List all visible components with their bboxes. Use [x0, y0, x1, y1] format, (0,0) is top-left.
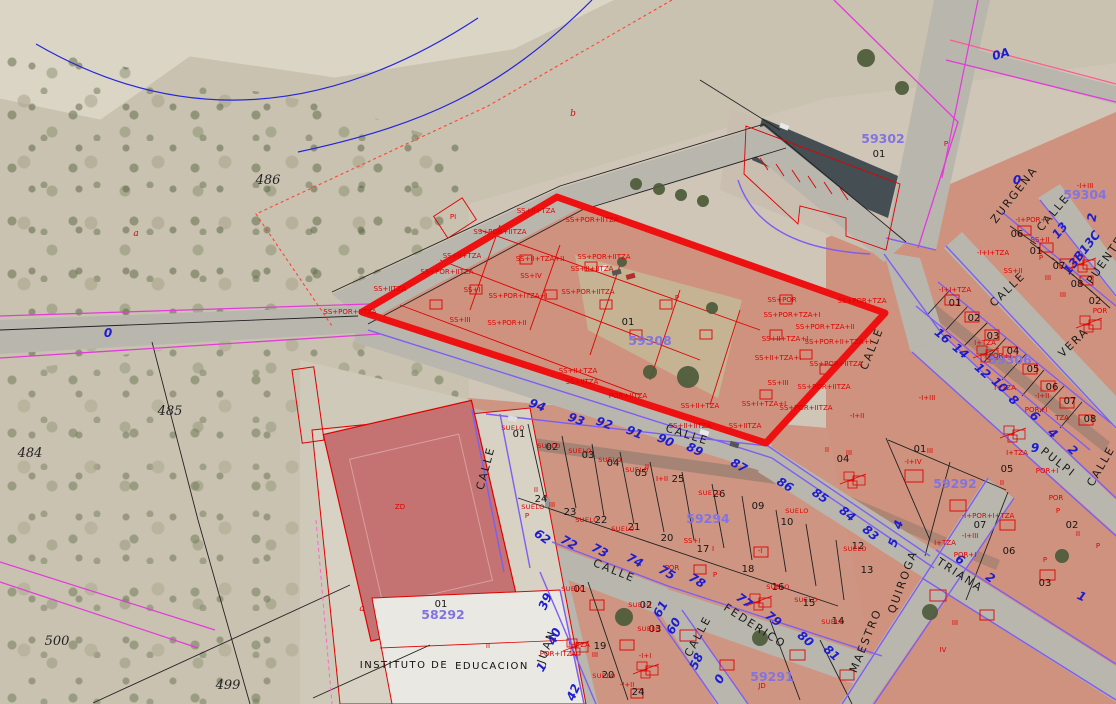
construction-label: SS+POR+IITZA: [577, 253, 630, 261]
suelo-label: SUELO: [766, 583, 790, 591]
construction-label: SS+II+TZA: [681, 402, 720, 410]
construction-label: -I+IV: [904, 458, 922, 466]
construction-label: I+TZA: [1006, 449, 1028, 457]
construction-label: II: [1000, 479, 1004, 487]
construction-label: SS+III: [450, 316, 471, 324]
construction-label: -I+POR+I: [1016, 216, 1049, 224]
suelo-label: SUELO: [698, 489, 722, 497]
contour-lines: [36, 0, 592, 152]
parcel-numbers-label: 17: [697, 544, 710, 555]
construction-label: SS+POR+IITZA: [420, 268, 473, 276]
construction-label: -I+I+TZA: [977, 249, 1009, 257]
construction-label: SS+POR+IITZA: [473, 228, 526, 236]
suelo-label: SUELO: [625, 466, 649, 474]
parcel-codes-label: 59292: [933, 476, 977, 491]
parcel-numbers-label: 01: [914, 444, 927, 455]
construction-label: P: [1096, 542, 1100, 550]
cadastral-map-viewport[interactable]: 5930259304593065930859294592925829259291…: [0, 0, 1116, 704]
parcel-numbers-label: 01: [949, 298, 962, 309]
terrain-label: 484: [17, 446, 43, 461]
suelo-label: SUELO: [821, 618, 845, 626]
street-numbers-label: 9: [1031, 441, 1039, 455]
construction-label: SS+III: [768, 379, 789, 387]
parcel-numbers-label: 06: [1011, 229, 1024, 240]
parcel-numbers-label: 02: [1089, 296, 1102, 307]
construction-label: POR+ITZA: [540, 650, 577, 658]
construction-label: I+II: [656, 475, 668, 483]
suelo-label: SUELO: [575, 516, 599, 524]
suelo-label: SUELO: [521, 503, 545, 511]
construction-label: IV: [940, 646, 947, 654]
parcel-numbers-label: 13: [861, 565, 874, 576]
construction-label: JD: [757, 682, 765, 690]
parcel-numbers-label: 10: [781, 517, 794, 528]
construction-label: I+TZA: [934, 539, 956, 547]
construction-label: II: [825, 446, 829, 454]
construction-label: SS+II+IITZA: [669, 422, 712, 430]
construction-label: II: [534, 486, 538, 494]
parcel-numbers-label: 02: [968, 313, 981, 324]
construction-label: SS+II+TZA: [443, 252, 482, 260]
construction-label: SS+II: [1004, 267, 1023, 275]
parcel-numbers-label: 01: [622, 317, 635, 328]
construction-label: SS+POR: [767, 296, 796, 304]
construction-label: SS+II+TZA+I: [755, 354, 802, 362]
construction-label: SS+POR+IITZA: [809, 360, 862, 368]
construction-label: II: [1076, 530, 1080, 538]
construction-label: POR+I: [1025, 406, 1048, 414]
suelo-label: SUELO: [794, 596, 818, 604]
parcel-numbers-label: 25: [672, 474, 685, 485]
construction-label: SS+POR+TZA+I: [763, 311, 820, 319]
construction-label: SS+IITZA: [729, 422, 762, 430]
construction-label: SS+POR+IITZA: [779, 404, 832, 412]
construction-label: II: [486, 642, 490, 650]
misc-black-label: EDUCACION: [455, 661, 529, 672]
suelo-label: SUELO: [501, 424, 525, 432]
construction-label: SS+I: [464, 286, 481, 294]
construction-label: SS+POR+II+TZA+I: [805, 338, 872, 346]
construction-label: POR: [1049, 494, 1064, 502]
parcel-numbers-label: 08: [1071, 279, 1084, 290]
construction-label: P: [1056, 507, 1060, 515]
terrain-label: 499: [215, 678, 241, 693]
construction-label: P: [713, 571, 717, 579]
construction-label: ZD: [395, 503, 405, 511]
construction-label: SS+IV: [520, 272, 542, 280]
suelo-label: SUELO: [598, 456, 622, 464]
construction-label: SS+IITZA: [374, 285, 407, 293]
suelo-label: SUELO: [592, 672, 616, 680]
terrain-label: 500: [45, 634, 70, 649]
construction-label: -I+I+TZA: [939, 286, 971, 294]
construction-label: SS+II+TZA+I: [762, 335, 809, 343]
construction-label: SS+I: [684, 537, 701, 545]
construction-label: POR+IITZA: [609, 392, 648, 400]
construction-label: POR: [665, 564, 680, 572]
construction-label: POR+I: [1036, 467, 1059, 475]
construction-label: III: [846, 449, 852, 457]
parcel-numbers-label: 08: [1084, 414, 1097, 425]
map-overlay: 5930259304593065930859294592925829259291…: [0, 0, 1116, 704]
construction-label: SS+II+TZA: [559, 367, 598, 375]
construction-label: III: [952, 619, 958, 627]
construction-label: POR+I: [989, 352, 1012, 360]
construction-label: III: [1060, 291, 1066, 299]
construction-label: SS+II: [1031, 236, 1050, 244]
parcel-numbers-label: 18: [742, 564, 755, 575]
construction-label: P: [1039, 254, 1043, 262]
suelo-label: SUELO: [843, 545, 867, 553]
construction-label: SS+POR+TZA+II: [795, 323, 854, 331]
misc-black-label: INSTITUTO DE: [360, 660, 448, 671]
construction-label: PI: [450, 213, 456, 221]
construction-label: P: [675, 294, 679, 302]
construction-label: I+TZA: [568, 641, 590, 649]
suelo-label: SUELO: [637, 625, 661, 633]
parcel-numbers-label: 20: [661, 533, 674, 544]
parcel-numbers-label: 03: [1039, 578, 1052, 589]
construction-label: I+TZA: [974, 339, 996, 347]
suelo-label: SUELO: [537, 442, 561, 450]
construction-label: III: [592, 651, 598, 659]
construction-label: P: [525, 512, 529, 520]
parcel-codes-label: 59291: [750, 669, 794, 684]
construction-label: -I+II: [1035, 392, 1050, 400]
construction-label: SS+POR+IITZA: [797, 383, 850, 391]
construction-label: III: [549, 501, 555, 509]
suelo-label: SUELO: [568, 447, 592, 455]
construction-label: SS+POR+IITZA: [323, 308, 376, 316]
construction-label: -I+II: [620, 681, 635, 689]
construction-label: -I+II: [850, 412, 865, 420]
construction-label: SS+POR+ITZA+I: [488, 292, 547, 300]
construction-label: III: [1045, 274, 1051, 282]
construction-label: -I: [758, 547, 763, 555]
parcel-numbers-label: 01: [435, 599, 448, 610]
parcel-codes-label: 59308: [628, 333, 672, 348]
parcel-numbers-label: 07: [974, 520, 987, 531]
construction-label: SS+II+TZA: [517, 207, 556, 215]
suelo-label: SUELO: [561, 585, 585, 593]
construction-label: POR+I: [954, 551, 977, 559]
construction-label: TZA: [1054, 414, 1069, 422]
construction-label: -I+III: [962, 532, 979, 540]
parcel-numbers-label: 05: [1001, 464, 1014, 475]
construction-label: SS+IITZA: [566, 378, 599, 386]
construction-label: P: [944, 140, 948, 148]
construction-label: POR: [1093, 307, 1108, 315]
letters-label: a: [359, 604, 364, 614]
construction-label: -I+I: [639, 652, 652, 660]
letters-label: a: [133, 229, 138, 239]
construction-label: SS+POR+II: [487, 319, 526, 327]
construction-label: I+TZA: [994, 384, 1016, 392]
suelo-label: SUELO: [611, 525, 635, 533]
construction-label: III: [927, 447, 933, 455]
parcel-codes-label: 59302: [861, 131, 905, 146]
construction-label: SS+POR+IITZA: [561, 288, 614, 296]
construction-label: P: [1043, 556, 1047, 564]
parcel-codes-label: 59294: [686, 511, 730, 526]
suelo-label: SUELO: [628, 601, 652, 609]
parcel-numbers-label: 01: [873, 149, 886, 160]
terrain-label: 485: [157, 404, 183, 419]
construction-label: SS+POR+TZA: [837, 297, 886, 305]
construction-label: SS+II+IITZA: [571, 265, 614, 273]
letters-label: b: [570, 109, 576, 119]
construction-label: -I+III: [919, 394, 936, 402]
parcel-numbers-label: 06: [1003, 546, 1016, 557]
parcel-numbers-label: 07: [1064, 396, 1077, 407]
construction-label: -I+POR+I+TZA: [962, 512, 1015, 520]
street-numbers-label: 0: [104, 326, 112, 340]
parcel-numbers-label: 07: [1053, 261, 1066, 272]
parcel-numbers-label: 09: [752, 501, 765, 512]
construction-label: SS+POR+IITZA: [565, 216, 618, 224]
construction-label: SS+II+TZA+II: [516, 255, 565, 263]
construction-label: -I+III: [1077, 182, 1094, 190]
parcel-numbers-label: 05: [1027, 364, 1040, 375]
terrain-label: 486: [255, 173, 281, 188]
construction-label: I: [712, 545, 714, 553]
street-numbers-label: 0: [1013, 173, 1021, 187]
suelo-label: SUELO: [785, 507, 809, 515]
